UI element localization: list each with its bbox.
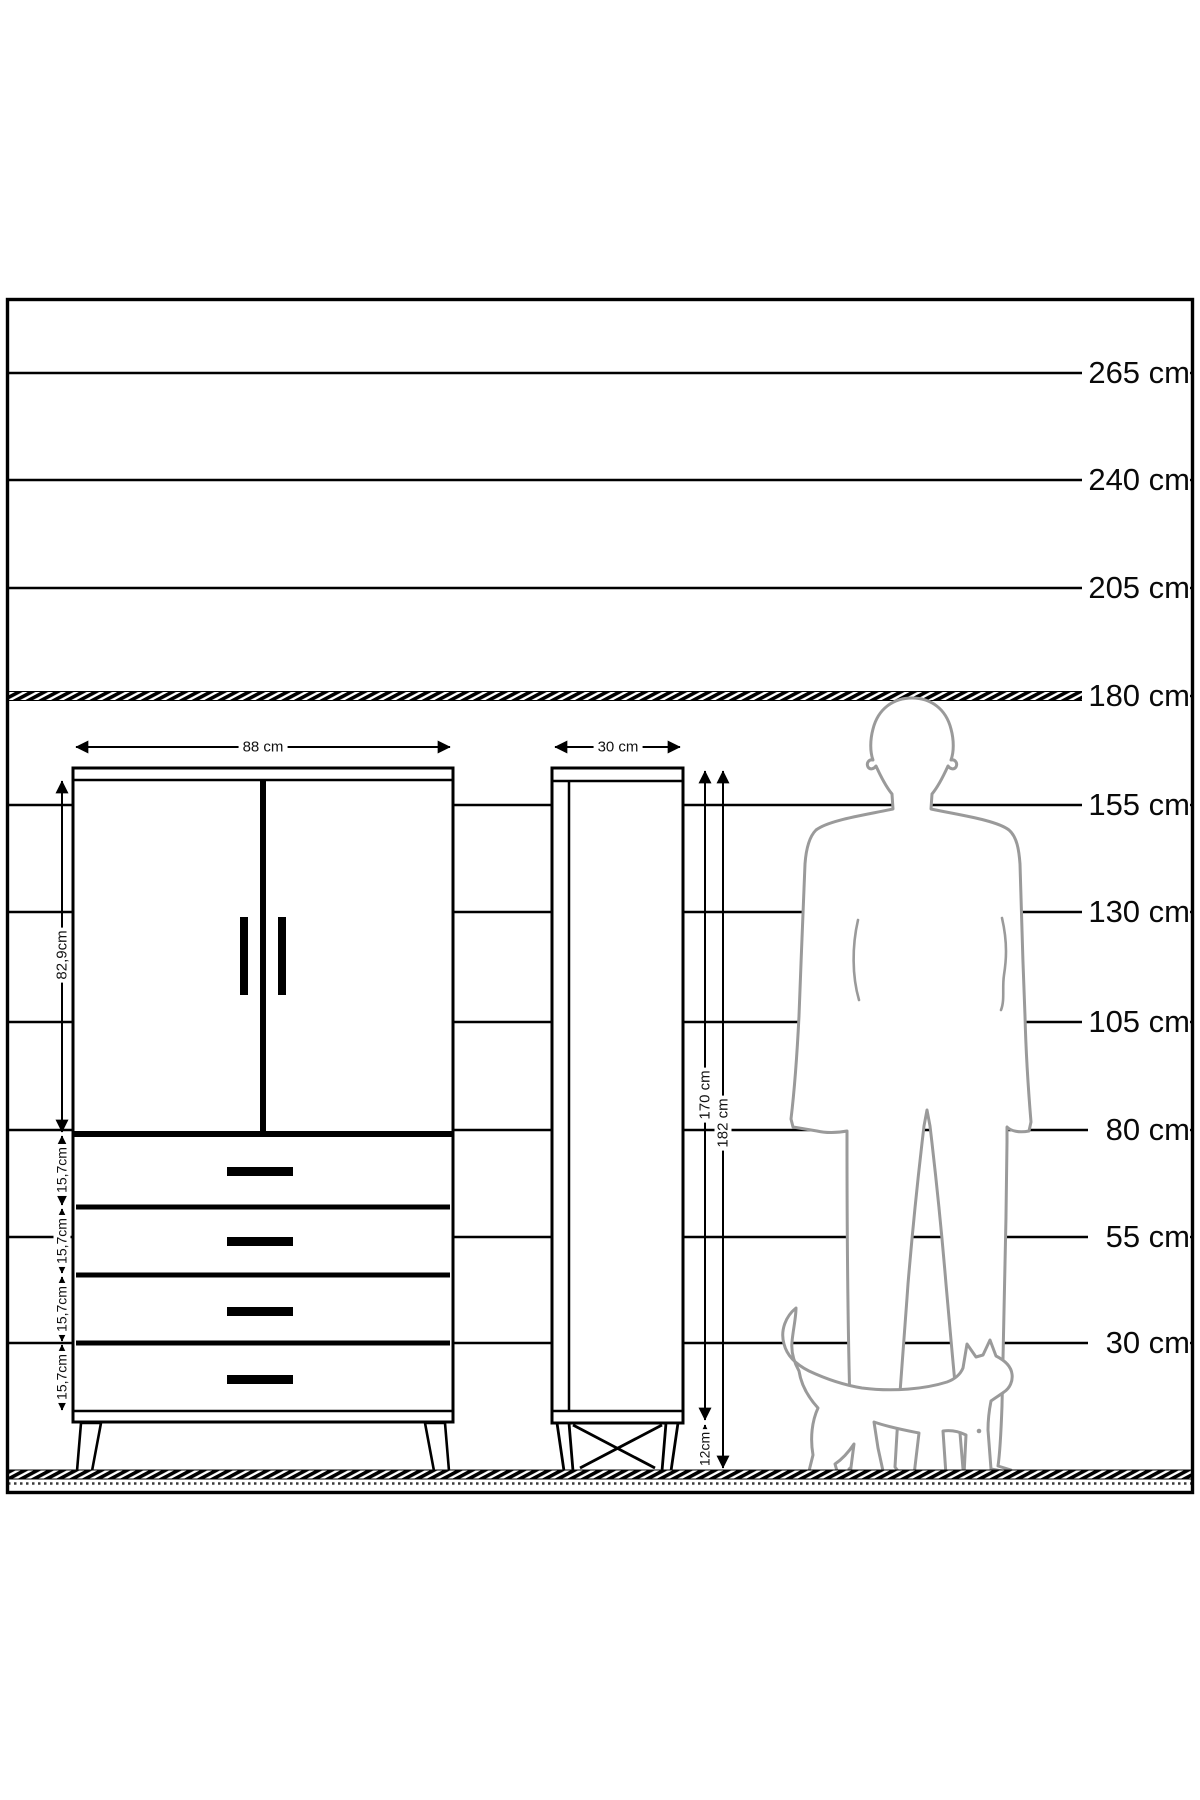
wardrobe-leg-left xyxy=(77,1423,101,1471)
drawer-handle xyxy=(227,1375,293,1384)
drawer-height-label: 15,7cm xyxy=(54,1215,71,1267)
scale-label: 55 cm xyxy=(1100,1221,1190,1253)
column-width-label: 30 cm xyxy=(594,739,643,756)
drawer-handle xyxy=(227,1167,293,1176)
scale-label: 205 cm xyxy=(1082,572,1190,604)
scale-label: 155 cm xyxy=(1082,789,1190,821)
cat-chest-dot xyxy=(977,1429,982,1434)
column-body-height-label: 170 cm xyxy=(697,1067,714,1122)
scale-label: 30 cm xyxy=(1100,1327,1190,1359)
scale-label: 130 cm xyxy=(1082,896,1190,928)
scale-label: 105 cm xyxy=(1082,1006,1190,1038)
diagram-drawing xyxy=(0,0,1200,1800)
door-handle-right xyxy=(278,917,286,995)
wardrobe xyxy=(73,768,453,1471)
wardrobe-width-label: 88 cm xyxy=(239,739,288,756)
drawer-height-label: 15,7cm xyxy=(54,1283,71,1335)
wardrobe-leg-right xyxy=(425,1423,449,1471)
door-handle-left xyxy=(240,917,248,995)
column-total-height-label: 182 cm xyxy=(715,1095,732,1150)
scale-label: 240 cm xyxy=(1082,464,1190,496)
column-leg-height-label: 12cm xyxy=(697,1429,714,1469)
furniture-dimension-diagram: 265 cm 240 cm 205 cm 180 cm 155 cm 130 c… xyxy=(0,0,1200,1800)
drawer-height-label: 15,7cm xyxy=(54,1144,71,1196)
tall-cabinet-body xyxy=(552,768,683,1423)
scale-label: 80 cm xyxy=(1100,1114,1190,1146)
scale-label: 265 cm xyxy=(1082,357,1190,389)
drawer-handle xyxy=(227,1237,293,1246)
drawer-handle xyxy=(227,1307,293,1316)
floor-line xyxy=(8,1470,1192,1484)
scale-label: 180 cm xyxy=(1082,680,1190,712)
drawer-height-label: 15,7cm xyxy=(54,1351,71,1403)
wardrobe-upper-height-label: 82,9cm xyxy=(54,927,71,982)
tall-cabinet xyxy=(552,768,683,1471)
tall-cabinet-legs xyxy=(557,1423,678,1471)
